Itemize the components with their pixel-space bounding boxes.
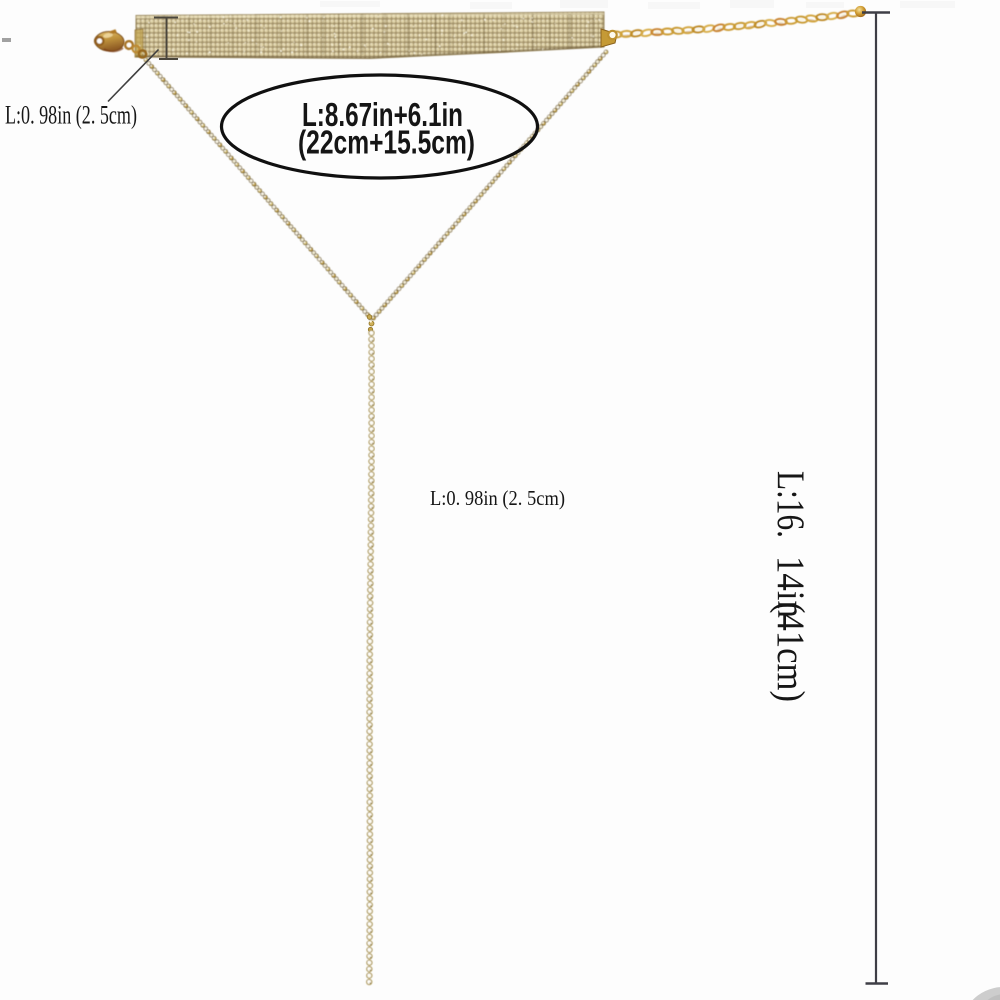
svg-text:L:0. 98in (2. 5cm): L:0. 98in (2. 5cm) — [5, 101, 137, 130]
svg-text:L:0. 98in (2. 5cm): L:0. 98in (2. 5cm) — [430, 486, 565, 510]
svg-text:L:16.: L:16. — [769, 471, 813, 538]
svg-text:(22cm+15.5cm): (22cm+15.5cm) — [298, 124, 475, 161]
svg-text:(41cm): (41cm) — [769, 602, 813, 702]
